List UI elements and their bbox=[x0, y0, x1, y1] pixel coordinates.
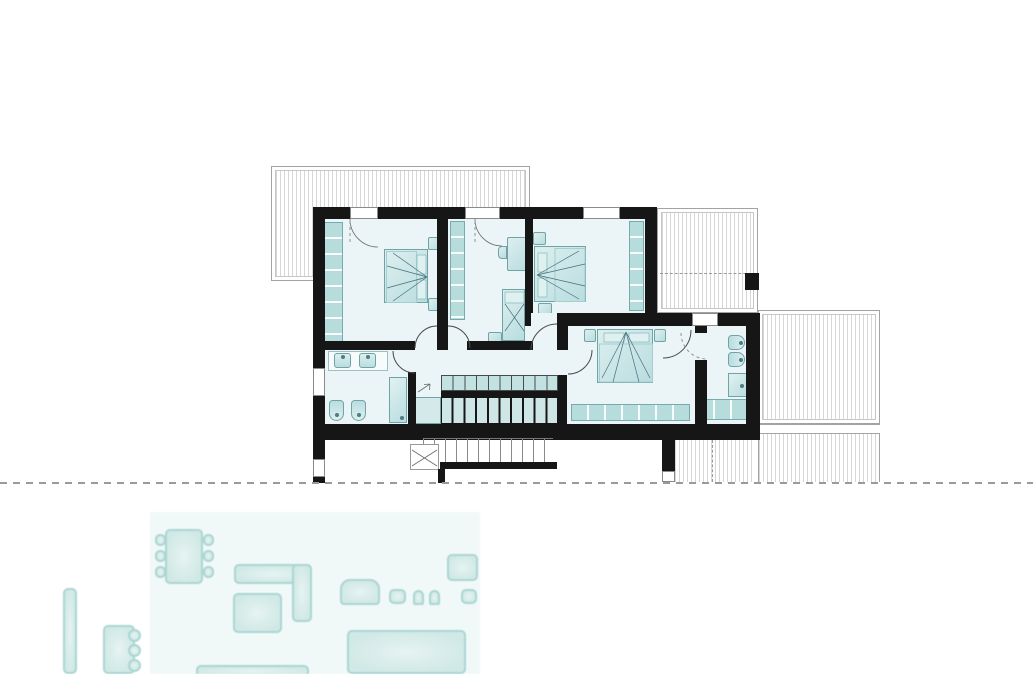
wall-mid-south bbox=[525, 313, 760, 326]
ground-floor-partial-plan bbox=[40, 505, 500, 674]
window-vestibule bbox=[692, 313, 718, 326]
terrace-right-hatch bbox=[762, 314, 876, 420]
kitchen-sink bbox=[461, 589, 477, 604]
toilet-1-icon bbox=[329, 400, 344, 421]
bidet-icon bbox=[728, 352, 745, 367]
kitchen-counter bbox=[340, 579, 380, 605]
basement-stairs-wall bbox=[440, 462, 557, 469]
terrace-center-dashed-line bbox=[660, 273, 756, 274]
door-opening-bathroom-2 bbox=[695, 333, 707, 360]
dining-chair-right-1 bbox=[203, 534, 214, 546]
bar-stool-2 bbox=[429, 590, 440, 605]
tall-cabinet bbox=[63, 588, 77, 674]
desk-chair-2 bbox=[128, 644, 141, 657]
terrace-right-upper bbox=[758, 310, 880, 424]
wall-bathroom-1-east bbox=[408, 372, 416, 424]
window-left-bathroom bbox=[313, 368, 325, 396]
bar-stool-1 bbox=[413, 590, 424, 605]
wall-bedroom-1-2 bbox=[437, 219, 448, 350]
dining-chair-right-3 bbox=[203, 566, 214, 578]
double-bed-bedroom-1 bbox=[384, 249, 428, 303]
desk-chair-bedroom-2 bbox=[498, 246, 507, 259]
desk-chair-3 bbox=[128, 659, 141, 672]
nightstand-bedroom-4-left bbox=[584, 329, 596, 342]
stairs-lower-flight bbox=[441, 397, 558, 424]
double-bed-bedroom-3 bbox=[534, 246, 586, 302]
desk-chair-1 bbox=[128, 629, 141, 642]
sideboard-bottom bbox=[196, 665, 309, 674]
terrace-pillar bbox=[745, 273, 759, 290]
door-opening-bedroom-3 bbox=[531, 313, 557, 326]
wall-corridor-north-b bbox=[467, 341, 533, 350]
wardrobe-bedroom-4 bbox=[571, 404, 690, 421]
floor-plan-canvas bbox=[0, 0, 1033, 674]
double-bed-bedroom-4 bbox=[597, 329, 653, 383]
kitchen-appliance bbox=[389, 589, 406, 604]
terrace-right-lower bbox=[758, 434, 880, 482]
kitchen-island bbox=[347, 630, 466, 674]
shower-bathroom-2 bbox=[728, 373, 747, 397]
nightstand-bedroom-3 bbox=[533, 232, 546, 245]
terrace-top-right bbox=[657, 208, 758, 313]
wall-bedroom-3-east bbox=[645, 207, 657, 326]
dining-table bbox=[165, 529, 203, 584]
window-bedroom-3 bbox=[583, 207, 620, 219]
wall-stub-corridor bbox=[557, 326, 568, 350]
shower-cabinet-bathroom-1 bbox=[389, 377, 407, 423]
wardrobe-bedroom-2 bbox=[450, 221, 465, 320]
section-cut-line bbox=[0, 482, 1033, 484]
window-below-pillar bbox=[662, 471, 675, 482]
balcony-dashed-line bbox=[712, 440, 713, 482]
balcony-bottom bbox=[675, 440, 752, 482]
wardrobe-bedroom-3 bbox=[629, 221, 644, 311]
basement-landing bbox=[410, 444, 439, 470]
pillar-below-building bbox=[662, 440, 675, 471]
dining-chair-right-2 bbox=[203, 550, 214, 562]
window-left-below-cut bbox=[313, 459, 325, 477]
single-bed-bedroom-2 bbox=[502, 289, 525, 341]
nightstand-bedroom-4-right bbox=[654, 329, 666, 342]
desk-bedroom-2 bbox=[507, 237, 527, 271]
wall-bedroom-2-3 bbox=[525, 219, 533, 313]
toilet-2-icon bbox=[351, 400, 366, 421]
sink-2-icon bbox=[359, 353, 376, 368]
basement-wall-stub bbox=[438, 469, 445, 483]
wall-stairwell-east bbox=[558, 375, 567, 424]
window-bedroom-1 bbox=[350, 207, 378, 219]
toilet-bathroom-2-icon bbox=[728, 335, 745, 350]
terrace-right-divider bbox=[758, 424, 880, 434]
sink-1-icon bbox=[334, 353, 351, 368]
sofa-vertical-seat bbox=[292, 564, 312, 622]
wall-right-outer bbox=[746, 326, 760, 424]
wall-corridor-north-a bbox=[325, 341, 415, 350]
kitchen-cabinet bbox=[447, 554, 478, 581]
window-bedroom-2 bbox=[465, 207, 500, 219]
stairs-upper-flight bbox=[441, 375, 558, 391]
ottoman bbox=[233, 593, 282, 633]
basement-stairs bbox=[423, 438, 553, 462]
wall-left bbox=[313, 207, 325, 483]
stairs-landing bbox=[413, 397, 441, 424]
wardrobe-bedroom-1 bbox=[322, 222, 343, 345]
terrace-hatch bbox=[661, 212, 754, 309]
